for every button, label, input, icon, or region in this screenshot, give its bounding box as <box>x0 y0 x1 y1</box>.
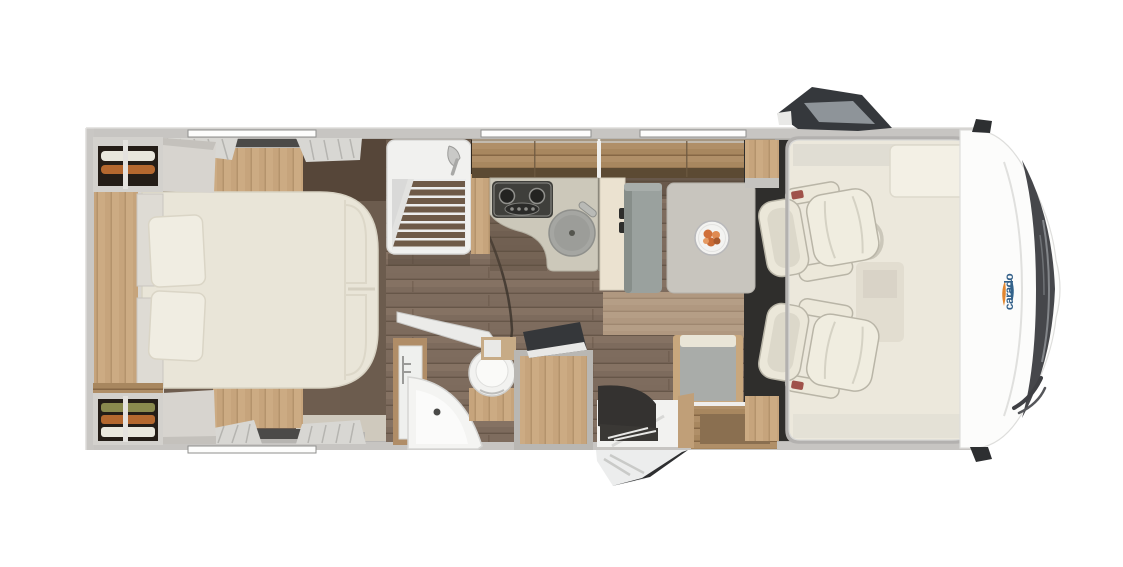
svg-text:carado: carado <box>1002 274 1016 311</box>
